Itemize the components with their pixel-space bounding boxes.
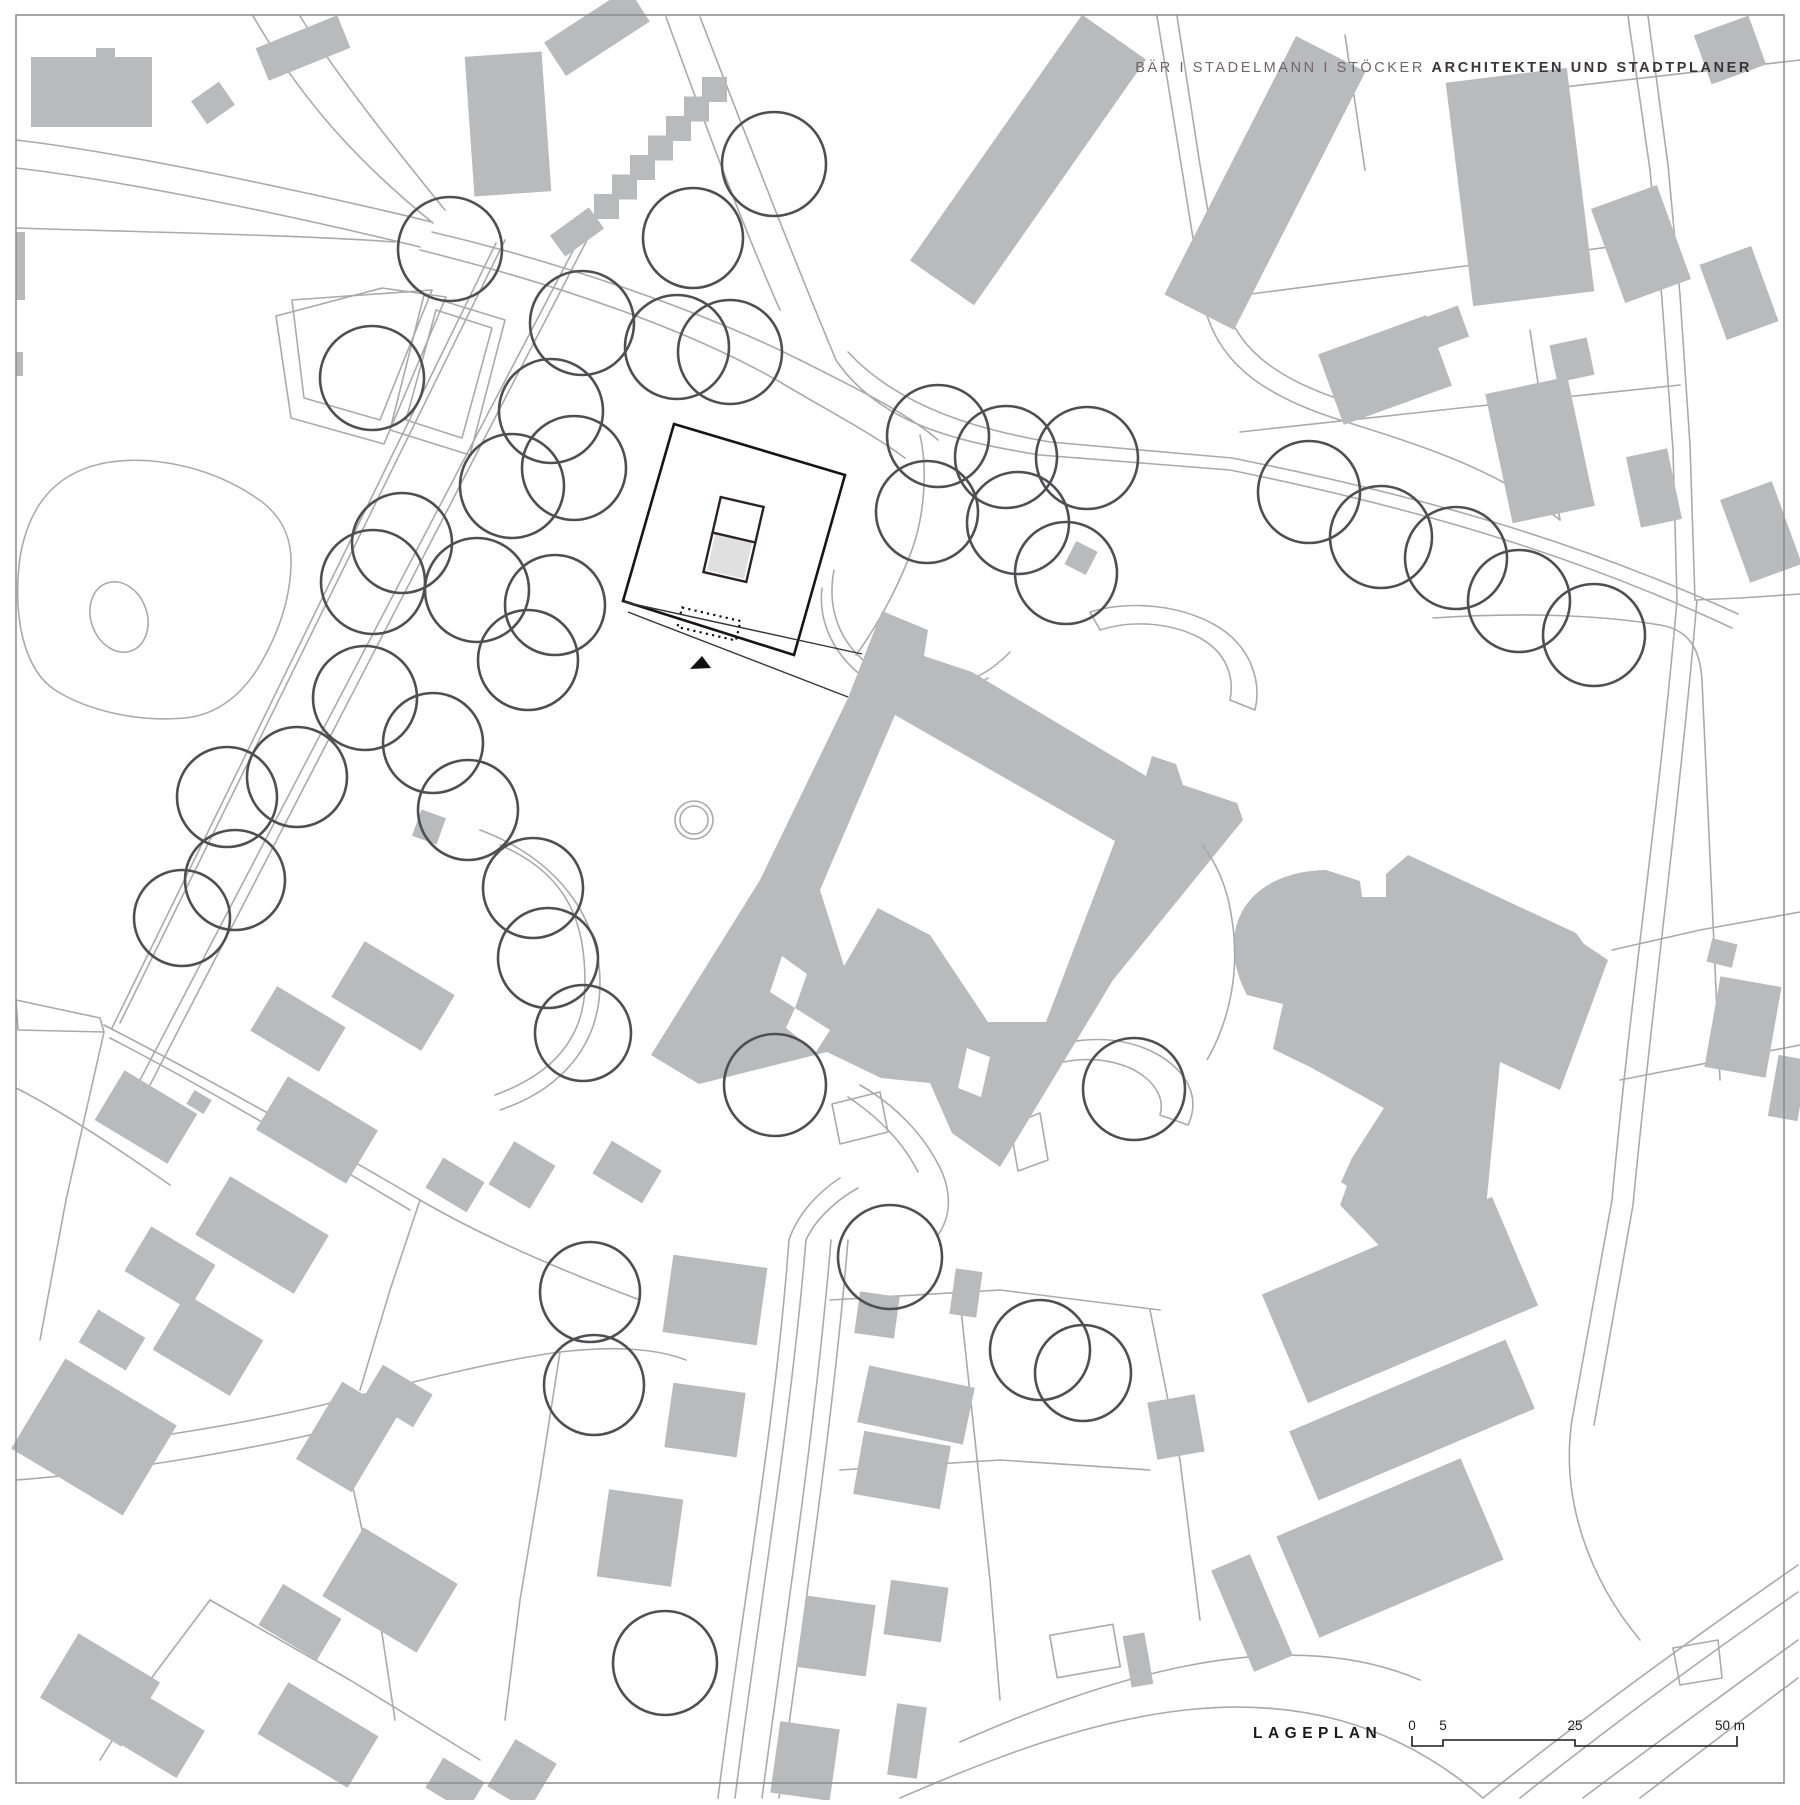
svg-text:BÄR I STADELMANN I STÖCKER ARC: BÄR I STADELMANN I STÖCKER ARCHITEKTEN U… (1135, 58, 1752, 76)
svg-text:5: 5 (1439, 1718, 1447, 1733)
svg-text:0: 0 (1408, 1718, 1416, 1733)
svg-text:25: 25 (1567, 1718, 1582, 1733)
svg-text:LAGEPLAN: LAGEPLAN (1253, 1725, 1382, 1742)
svg-text:50 m: 50 m (1715, 1718, 1745, 1733)
